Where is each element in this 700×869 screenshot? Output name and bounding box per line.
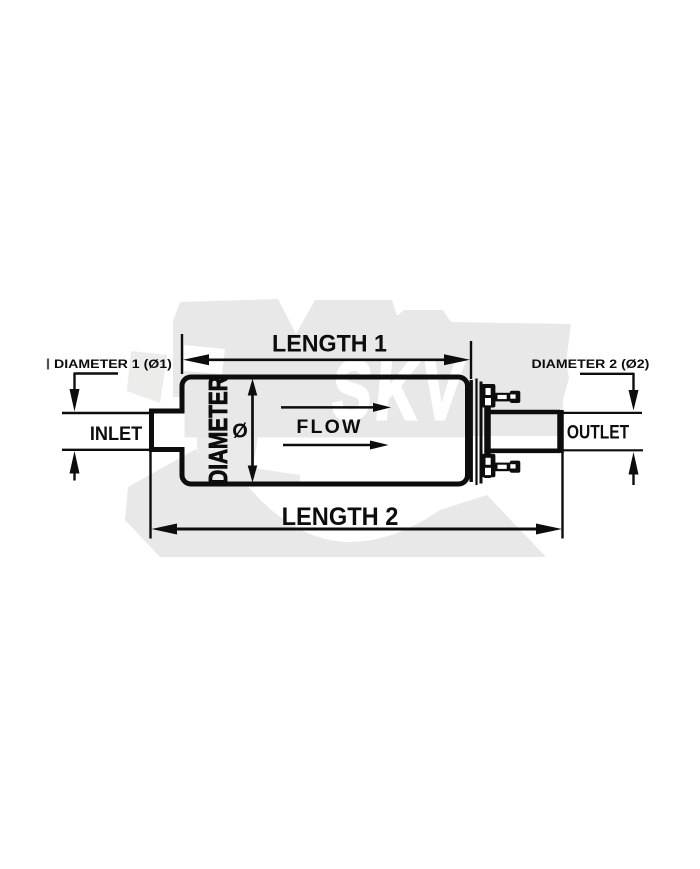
svg-text:FLOW: FLOW <box>296 416 362 438</box>
svg-text:LENGTH 1: LENGTH 1 <box>272 330 387 358</box>
svg-text:DIAMETER 2 (Ø2): DIAMETER 2 (Ø2) <box>532 357 650 371</box>
svg-text:DIAMETER: DIAMETER <box>204 376 233 485</box>
svg-text:LENGTH 2: LENGTH 2 <box>282 503 399 531</box>
svg-text:INLET: INLET <box>90 422 143 444</box>
svg-text:DIAMETER 1 (Ø1): DIAMETER 1 (Ø1) <box>54 357 172 371</box>
svg-text:OUTLET: OUTLET <box>567 421 630 443</box>
svg-text:Ø: Ø <box>232 421 248 443</box>
